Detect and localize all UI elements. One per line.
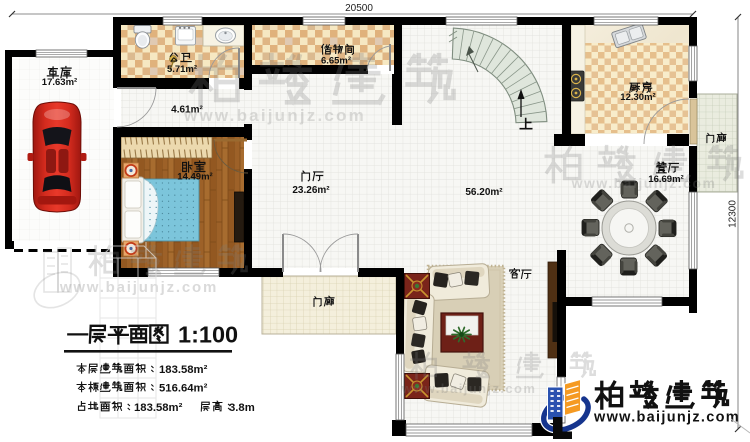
svg-text:20500: 20500	[345, 3, 373, 14]
svg-text:4.61m²: 4.61m²	[171, 105, 203, 116]
svg-text:17.63m²: 17.63m²	[42, 77, 77, 88]
svg-text:6.65m²: 6.65m²	[321, 56, 351, 67]
svg-text:16.69m²: 16.69m²	[648, 174, 683, 185]
svg-text:56.20m²: 56.20m²	[465, 187, 503, 198]
svg-text:www.baijunjz.com: www.baijunjz.com	[571, 175, 717, 191]
svg-text:183.58m²: 183.58m²	[159, 364, 208, 376]
svg-text:12300: 12300	[728, 200, 739, 228]
svg-text:5.71m²: 5.71m²	[167, 64, 197, 75]
svg-text:14.49m²: 14.49m²	[177, 172, 212, 183]
svg-text:3.8m: 3.8m	[229, 402, 255, 414]
svg-text:www.baijunjz.com: www.baijunjz.com	[401, 381, 537, 396]
svg-text:www.baijunjz.com: www.baijunjz.com	[183, 106, 366, 125]
svg-text:1:100: 1:100	[178, 322, 238, 348]
svg-text:516.64m²: 516.64m²	[159, 382, 208, 394]
svg-text:183.58m²: 183.58m²	[134, 402, 183, 414]
svg-text:12.30m²: 12.30m²	[620, 92, 655, 103]
svg-text:www.baijunjz.com: www.baijunjz.com	[593, 410, 740, 426]
svg-text:23.26m²: 23.26m²	[292, 185, 330, 196]
